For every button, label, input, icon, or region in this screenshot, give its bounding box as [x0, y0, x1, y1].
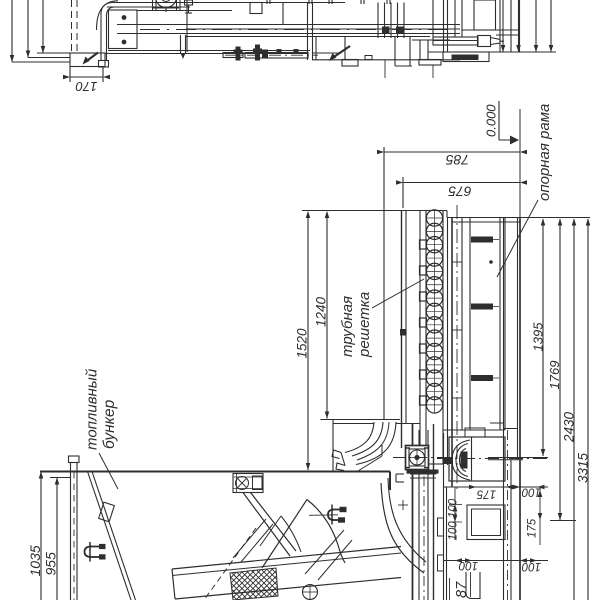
svg-text:1395: 1395: [531, 322, 546, 352]
svg-text:87: 87: [454, 581, 470, 598]
svg-text:2430: 2430: [562, 411, 577, 443]
svg-text:100: 100: [448, 521, 460, 541]
svg-text:1769: 1769: [547, 361, 562, 390]
svg-text:100: 100: [521, 486, 541, 498]
svg-text:100: 100: [458, 559, 478, 571]
svg-text:1035: 1035: [27, 545, 43, 576]
svg-text:785: 785: [446, 152, 470, 168]
svg-text:трубная: трубная: [339, 296, 356, 357]
svg-text:955: 955: [43, 552, 59, 576]
svg-text:175: 175: [476, 488, 496, 500]
svg-text:0.000: 0.000: [484, 104, 499, 137]
svg-text:бункер: бункер: [101, 399, 118, 449]
svg-text:1240: 1240: [314, 296, 329, 327]
svg-text:175: 175: [527, 518, 539, 538]
svg-text:1520: 1520: [295, 328, 310, 359]
svg-text:100: 100: [448, 498, 460, 518]
svg-text:100: 100: [521, 560, 541, 572]
svg-text:3315: 3315: [576, 452, 591, 483]
svg-text:170: 170: [75, 79, 97, 94]
svg-text:топливный: топливный: [84, 368, 101, 450]
svg-text:675: 675: [448, 184, 472, 200]
svg-text:решетка: решетка: [356, 292, 373, 358]
svg-text:опорная рама: опорная рама: [536, 104, 553, 201]
